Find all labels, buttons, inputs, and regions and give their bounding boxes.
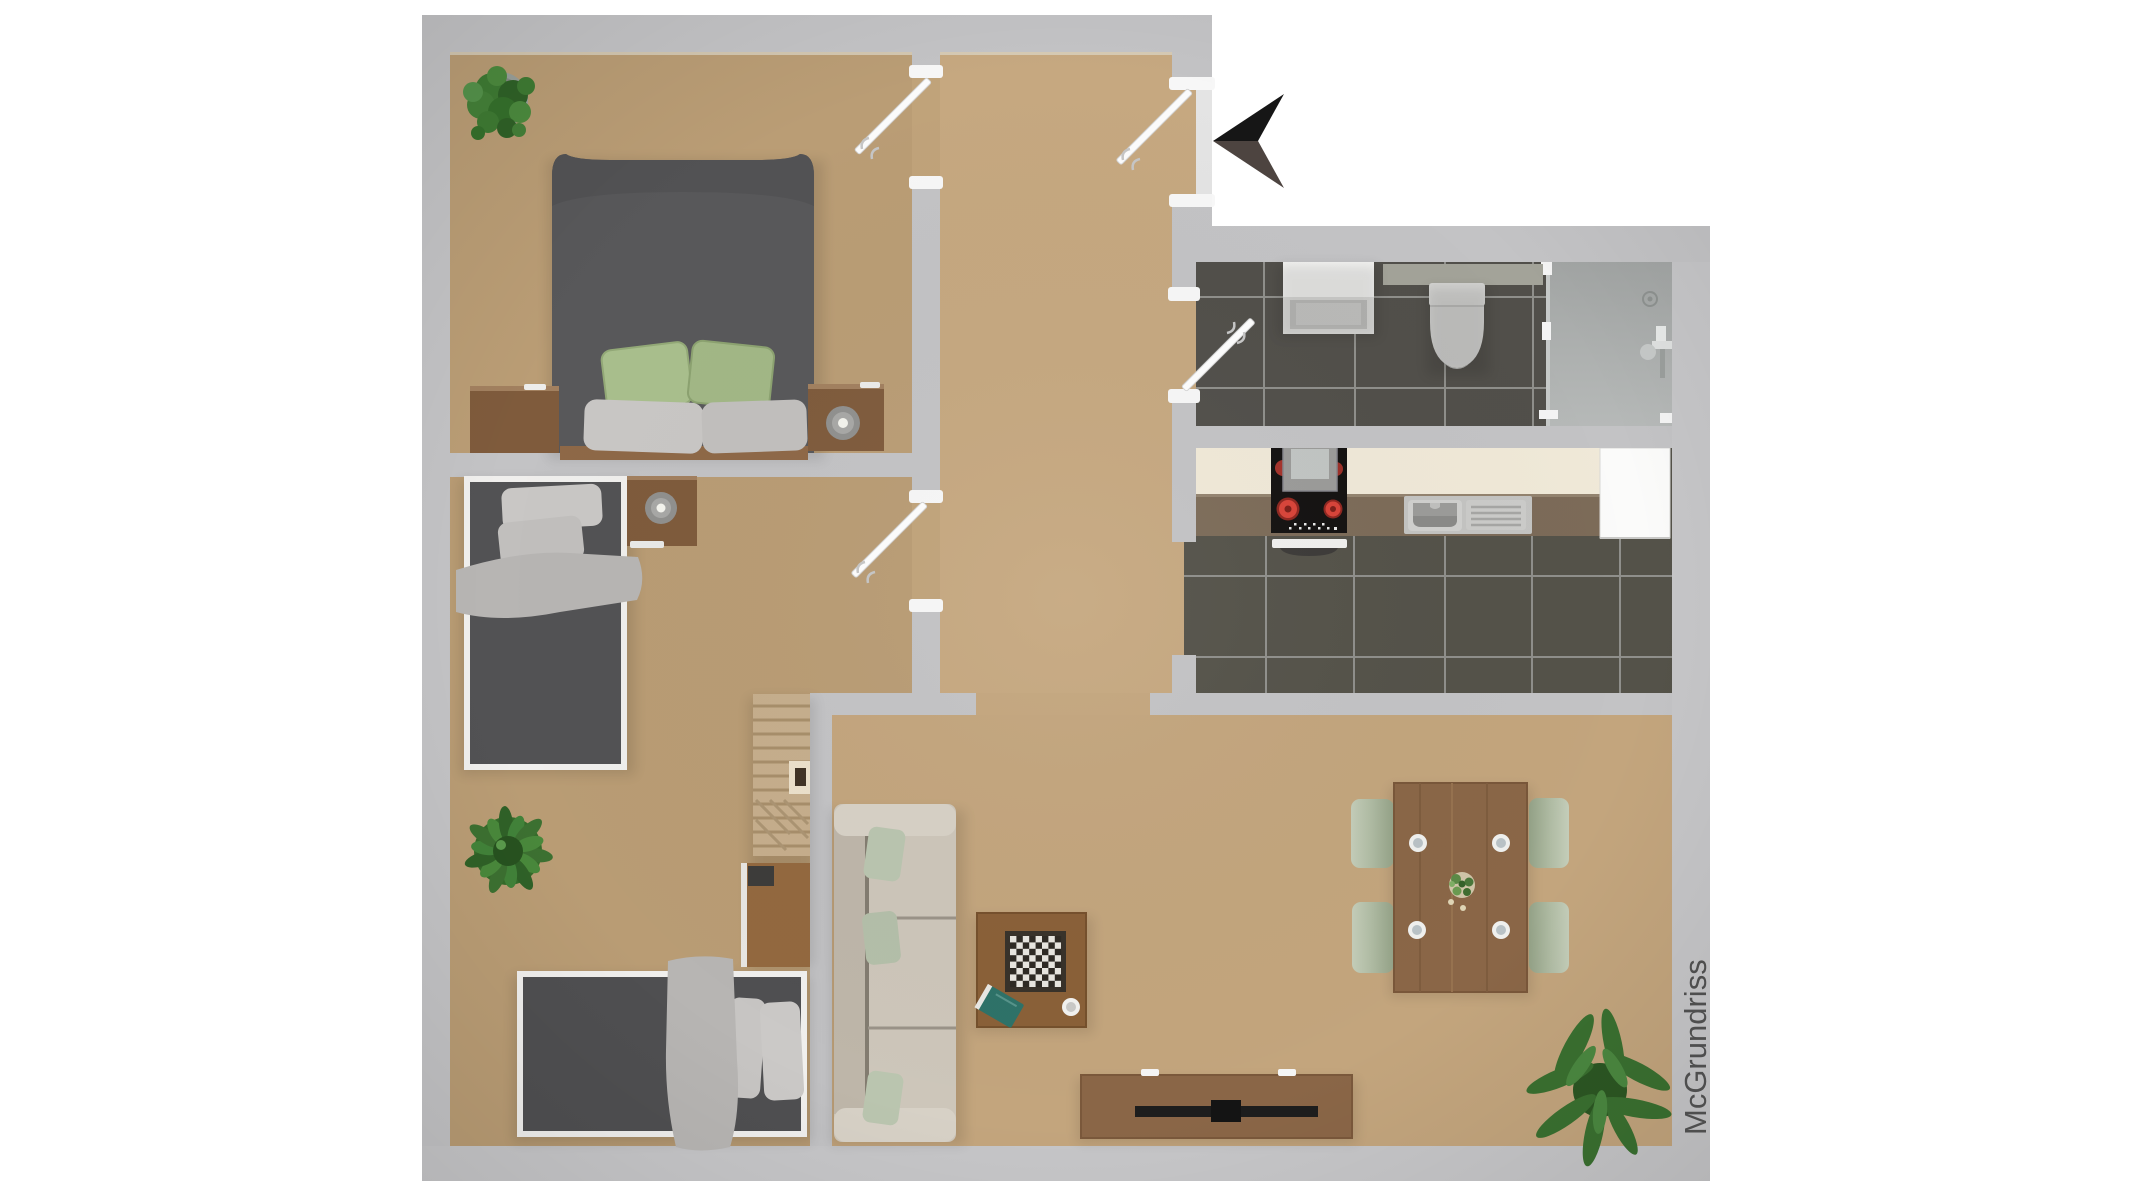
svg-text:McGrundriss: McGrundriss <box>1678 959 1713 1135</box>
